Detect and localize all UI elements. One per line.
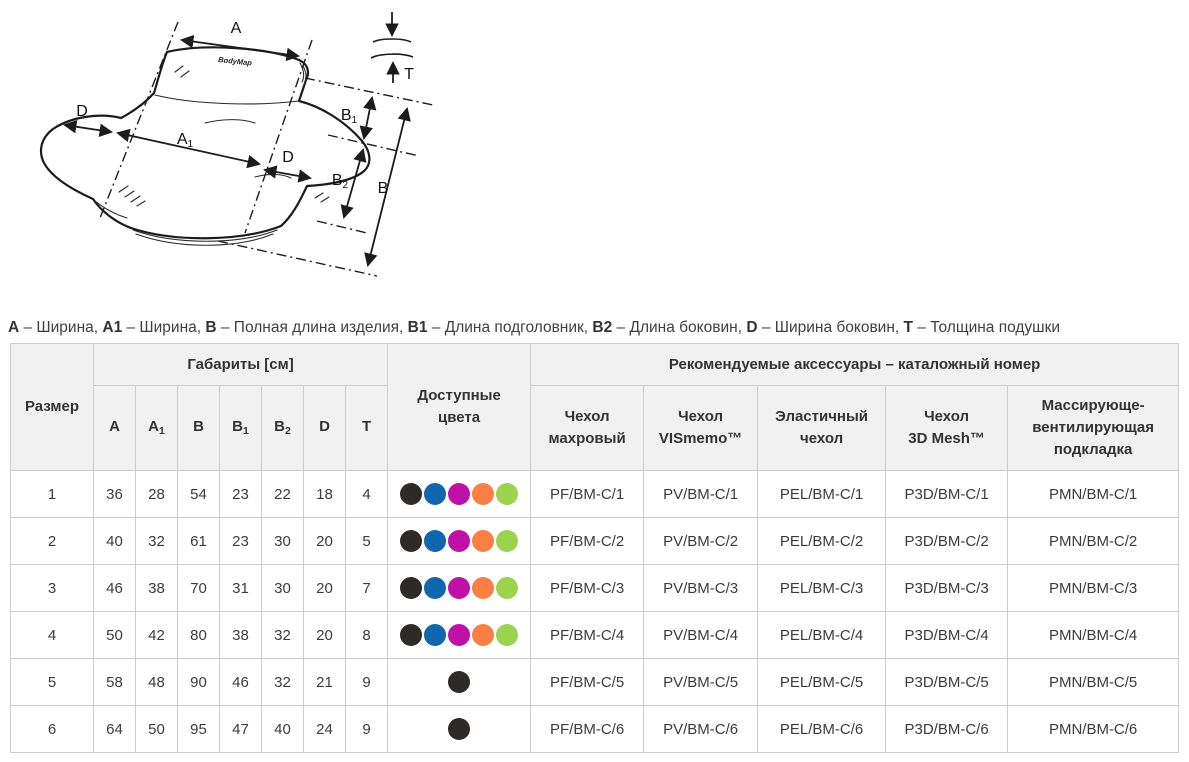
accessory-cell: PV/BM-C/6 xyxy=(644,706,758,753)
accessory-cell: PF/BM-C/3 xyxy=(531,565,644,612)
dim-cell: 18 xyxy=(304,471,346,518)
dim-cell: 20 xyxy=(304,612,346,659)
header-dim-B: B xyxy=(178,386,220,471)
cushion-dimension-diagram: BodyMap A A1 D D B1 B2 B T xyxy=(15,2,475,298)
color-dot-magenta xyxy=(448,624,470,646)
size-cell: 2 xyxy=(11,518,94,565)
colors-cell xyxy=(388,471,531,518)
color-dots xyxy=(400,483,518,505)
header-dim-T: T xyxy=(346,386,388,471)
accessory-cell: PMN/BM-C/1 xyxy=(1008,471,1179,518)
accessory-cell: P3D/BM-C/5 xyxy=(886,659,1008,706)
table-row: 13628542322184PF/BM-C/1PV/BM-C/1PEL/BM-C… xyxy=(11,471,1179,518)
dim-cell: 28 xyxy=(136,471,178,518)
dim-cell: 54 xyxy=(178,471,220,518)
color-dot-blue xyxy=(424,624,446,646)
label-T: T xyxy=(404,66,414,83)
legend-key: A xyxy=(8,319,19,336)
size-cell: 4 xyxy=(11,612,94,659)
color-dot-orange xyxy=(472,624,494,646)
dim-cell: 80 xyxy=(178,612,220,659)
accessory-cell: PEL/BM-C/5 xyxy=(758,659,886,706)
dim-cell: 95 xyxy=(178,706,220,753)
color-dot-magenta xyxy=(448,483,470,505)
dim-cell: 30 xyxy=(262,518,304,565)
label-D-mid: D xyxy=(282,149,294,166)
accessory-cell: P3D/BM-C/6 xyxy=(886,706,1008,753)
color-dot-black xyxy=(400,483,422,505)
accessory-cell: PMN/BM-C/2 xyxy=(1008,518,1179,565)
accessory-cell: PV/BM-C/1 xyxy=(644,471,758,518)
header-accessory-elastic-cover: Эластичныйчехол xyxy=(758,386,886,471)
table-row: 55848904632219PF/BM-C/5PV/BM-C/5PEL/BM-C… xyxy=(11,659,1179,706)
accessory-cell: P3D/BM-C/1 xyxy=(886,471,1008,518)
accessory-cell: P3D/BM-C/3 xyxy=(886,565,1008,612)
color-dot-magenta xyxy=(448,530,470,552)
header-dim-D: D xyxy=(304,386,346,471)
dim-cell: 90 xyxy=(178,659,220,706)
dim-cell: 21 xyxy=(304,659,346,706)
dim-cell: 32 xyxy=(136,518,178,565)
dim-cell: 50 xyxy=(136,706,178,753)
accessory-cell: PV/BM-C/5 xyxy=(644,659,758,706)
header-accessory-massage-pad: Массирующе-вентилирующаяподкладка xyxy=(1008,386,1179,471)
dim-cell: 61 xyxy=(178,518,220,565)
dim-cell: 50 xyxy=(94,612,136,659)
header-dim-B1: B1 xyxy=(220,386,262,471)
color-dots xyxy=(448,718,470,740)
dim-cell: 46 xyxy=(94,565,136,612)
header-dim-A1: A1 xyxy=(136,386,178,471)
header-available-colors: Доступныецвета xyxy=(388,344,531,471)
color-dot-black xyxy=(448,671,470,693)
header-accessories-group: Рекомендуемые аксессуары – каталожный но… xyxy=(531,344,1179,386)
header-dim-B2: B2 xyxy=(262,386,304,471)
dim-cell: 38 xyxy=(136,565,178,612)
color-dot-green xyxy=(496,483,518,505)
accessory-cell: PMN/BM-C/3 xyxy=(1008,565,1179,612)
dim-cell: 32 xyxy=(262,659,304,706)
accessory-cell: PF/BM-C/1 xyxy=(531,471,644,518)
dim-cell: 64 xyxy=(94,706,136,753)
label-D-left: D xyxy=(76,103,88,120)
legend-key: B2 xyxy=(592,319,612,336)
accessory-cell: PV/BM-C/2 xyxy=(644,518,758,565)
table-row: 34638703130207PF/BM-C/3PV/BM-C/3PEL/BM-C… xyxy=(11,565,1179,612)
accessory-cell: PF/BM-C/5 xyxy=(531,659,644,706)
dim-cell: 24 xyxy=(304,706,346,753)
dimension-legend: A – Ширина, A1 – Ширина, B – Полная длин… xyxy=(8,319,1183,337)
dim-cell: 23 xyxy=(220,471,262,518)
header-dim-A: A xyxy=(94,386,136,471)
header-dimensions-group: Габариты [см] xyxy=(94,344,388,386)
accessory-cell: PEL/BM-C/2 xyxy=(758,518,886,565)
color-dot-blue xyxy=(424,577,446,599)
color-dot-green xyxy=(496,624,518,646)
color-dot-orange xyxy=(472,530,494,552)
size-cell: 3 xyxy=(11,565,94,612)
header-accessory-3dmesh-cover: Чехол3D Mesh™ xyxy=(886,386,1008,471)
header-size: Размер xyxy=(11,344,94,471)
dim-cell: 9 xyxy=(346,706,388,753)
dim-cell: 38 xyxy=(220,612,262,659)
accessory-cell: PEL/BM-C/6 xyxy=(758,706,886,753)
label-A: A xyxy=(231,20,242,37)
table-row: 45042803832208PF/BM-C/4PV/BM-C/4PEL/BM-C… xyxy=(11,612,1179,659)
color-dot-black xyxy=(448,718,470,740)
size-spec-table: Размер Габариты [см] Доступныецвета Реко… xyxy=(10,343,1179,753)
dim-cell: 40 xyxy=(262,706,304,753)
dim-cell: 31 xyxy=(220,565,262,612)
color-dot-black xyxy=(400,624,422,646)
accessory-cell: P3D/BM-C/2 xyxy=(886,518,1008,565)
accessory-cell: PMN/BM-C/6 xyxy=(1008,706,1179,753)
colors-cell xyxy=(388,706,531,753)
colors-cell xyxy=(388,612,531,659)
cushion-outline xyxy=(41,47,369,238)
accessory-cell: PV/BM-C/4 xyxy=(644,612,758,659)
legend-key: A1 xyxy=(102,319,122,336)
accessory-cell: PEL/BM-C/3 xyxy=(758,565,886,612)
dim-cell: 22 xyxy=(262,471,304,518)
colors-cell xyxy=(388,518,531,565)
colors-cell xyxy=(388,659,531,706)
accessory-cell: PF/BM-C/4 xyxy=(531,612,644,659)
dim-cell: 30 xyxy=(262,565,304,612)
color-dot-blue xyxy=(424,483,446,505)
size-cell: 1 xyxy=(11,471,94,518)
accessory-cell: PEL/BM-C/4 xyxy=(758,612,886,659)
dim-cell: 9 xyxy=(346,659,388,706)
color-dot-orange xyxy=(472,577,494,599)
accessory-cell: PEL/BM-C/1 xyxy=(758,471,886,518)
color-dots xyxy=(400,624,518,646)
label-B1: B1 xyxy=(341,107,358,126)
color-dots xyxy=(400,577,518,599)
color-dot-orange xyxy=(472,483,494,505)
accessory-cell: PMN/BM-C/5 xyxy=(1008,659,1179,706)
label-B: B xyxy=(378,180,389,197)
dim-cell: 5 xyxy=(346,518,388,565)
accessory-cell: PV/BM-C/3 xyxy=(644,565,758,612)
dim-cell: 20 xyxy=(304,565,346,612)
accessory-cell: PF/BM-C/2 xyxy=(531,518,644,565)
page: { "diagram": { "logo": "BodyMap", "label… xyxy=(0,0,1189,762)
accessory-cell: P3D/BM-C/4 xyxy=(886,612,1008,659)
dim-cell: 23 xyxy=(220,518,262,565)
color-dot-black xyxy=(400,577,422,599)
dim-cell: 36 xyxy=(94,471,136,518)
header-accessory-vismemo-cover: ЧехолVISmemo™ xyxy=(644,386,758,471)
dim-cell: 20 xyxy=(304,518,346,565)
dim-cell: 32 xyxy=(262,612,304,659)
dim-cell: 8 xyxy=(346,612,388,659)
color-dot-magenta xyxy=(448,577,470,599)
dim-cell: 58 xyxy=(94,659,136,706)
colors-cell xyxy=(388,565,531,612)
dim-cell: 4 xyxy=(346,471,388,518)
legend-key: B1 xyxy=(408,319,428,336)
dim-cell: 7 xyxy=(346,565,388,612)
color-dot-blue xyxy=(424,530,446,552)
accessory-cell: PF/BM-C/6 xyxy=(531,706,644,753)
spec-table-body: 13628542322184PF/BM-C/1PV/BM-C/1PEL/BM-C… xyxy=(11,471,1179,753)
color-dots xyxy=(448,671,470,693)
header-accessory-terry-cover: Чехолмахровый xyxy=(531,386,644,471)
dim-cell: 70 xyxy=(178,565,220,612)
size-cell: 5 xyxy=(11,659,94,706)
dim-cell: 47 xyxy=(220,706,262,753)
color-dot-green xyxy=(496,530,518,552)
legend-key: T xyxy=(904,319,913,336)
table-row: 24032612330205PF/BM-C/2PV/BM-C/2PEL/BM-C… xyxy=(11,518,1179,565)
color-dots xyxy=(400,530,518,552)
dim-cell: 46 xyxy=(220,659,262,706)
dim-cell: 42 xyxy=(136,612,178,659)
accessory-cell: PMN/BM-C/4 xyxy=(1008,612,1179,659)
legend-key: B xyxy=(205,319,216,336)
size-cell: 6 xyxy=(11,706,94,753)
table-row: 66450954740249PF/BM-C/6PV/BM-C/6PEL/BM-C… xyxy=(11,706,1179,753)
dim-cell: 48 xyxy=(136,659,178,706)
color-dot-green xyxy=(496,577,518,599)
dim-cell: 40 xyxy=(94,518,136,565)
color-dot-black xyxy=(400,530,422,552)
legend-key: D xyxy=(746,319,757,336)
